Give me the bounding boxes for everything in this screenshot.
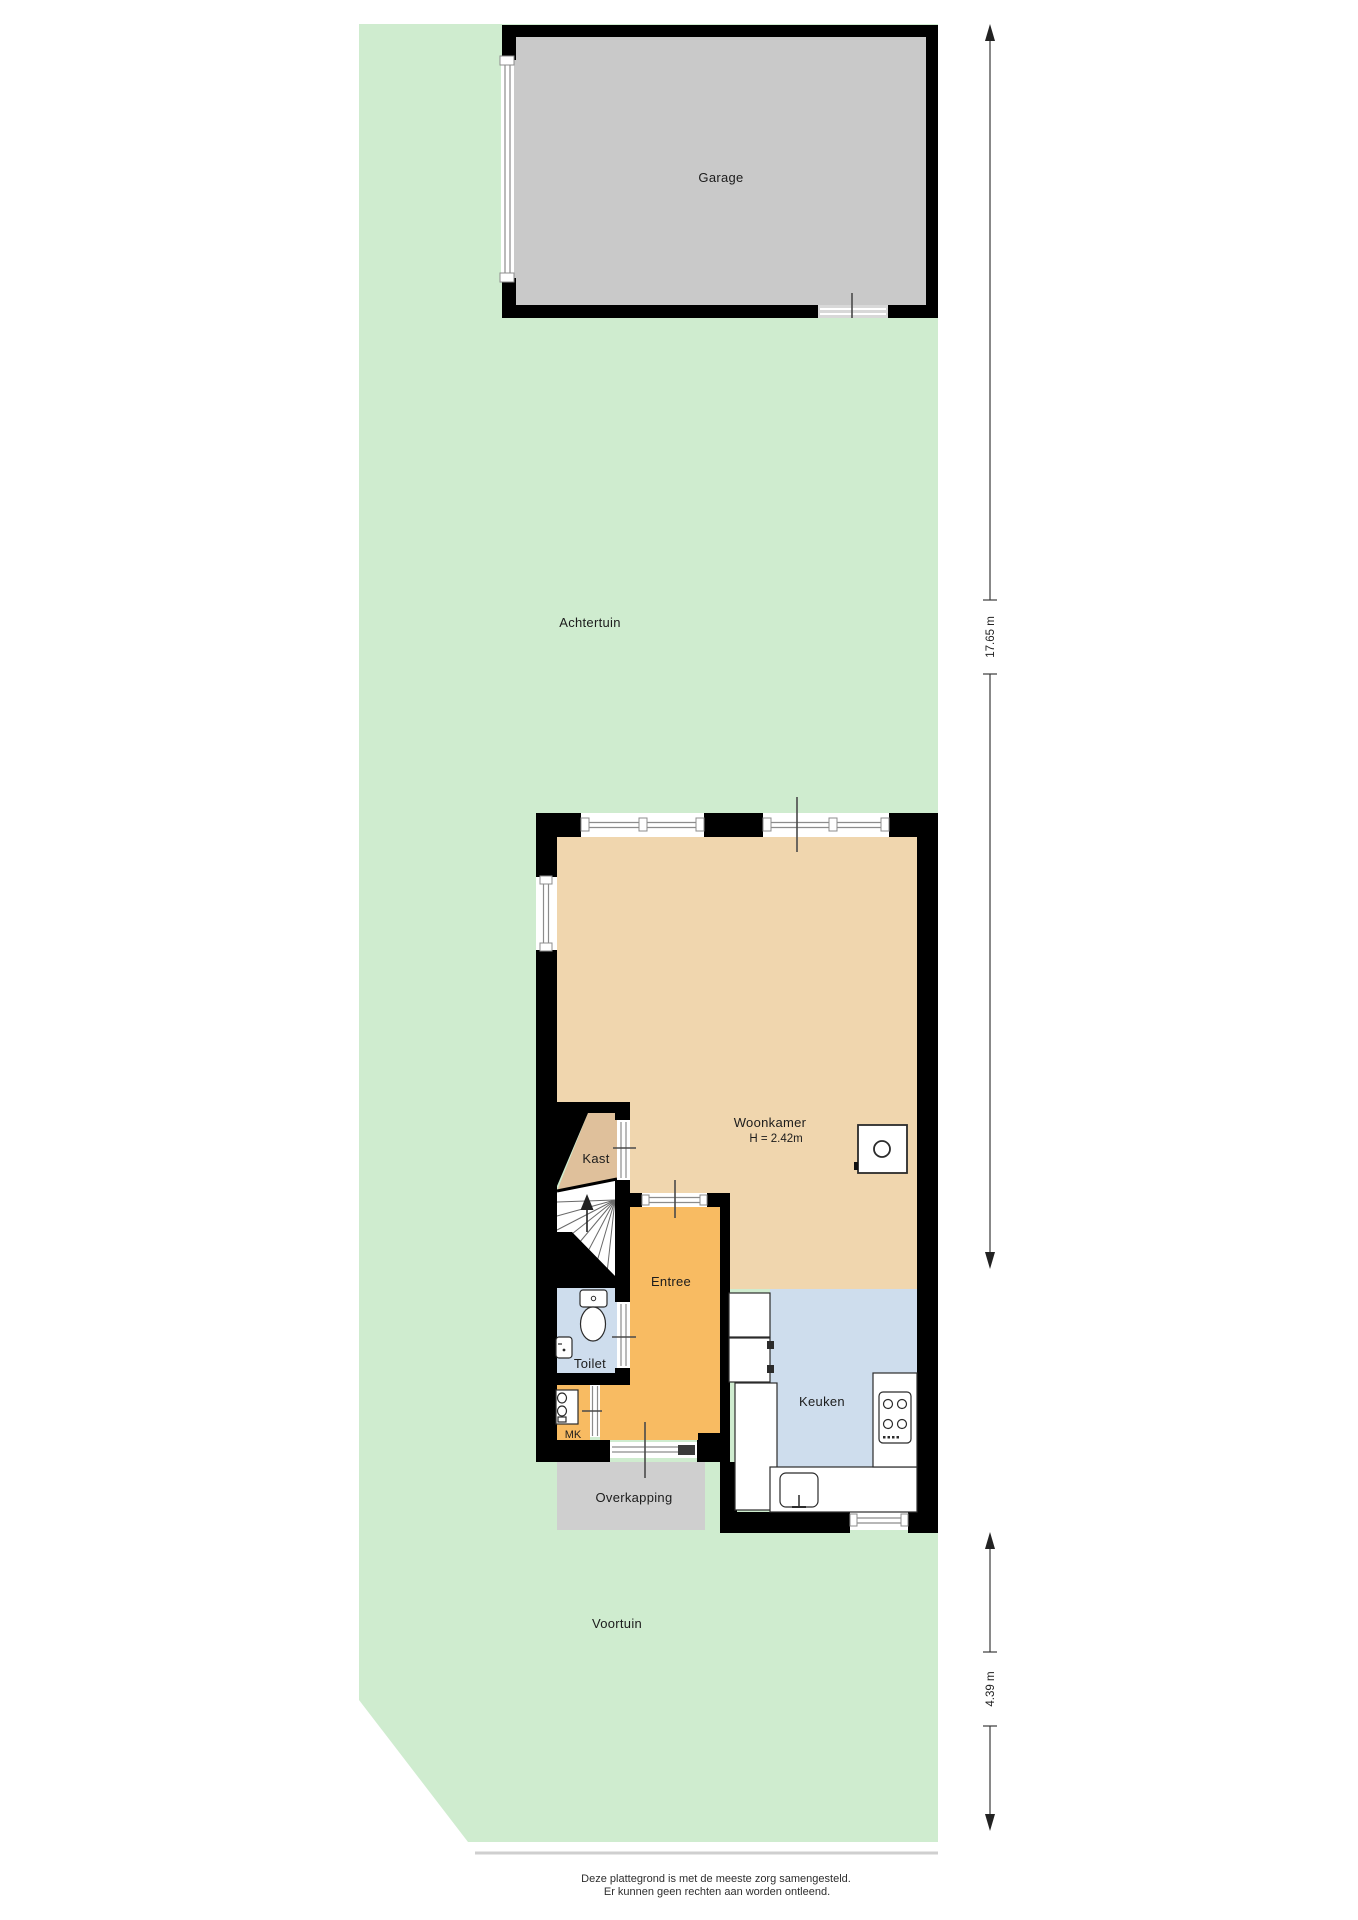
toilet-icon xyxy=(580,1290,607,1341)
overkapping-label: Overkapping xyxy=(595,1490,672,1505)
keuken-label: Keuken xyxy=(799,1394,845,1409)
floorplan-canvas: Garage Achtertuin Voortuin xyxy=(0,0,1358,1920)
toilet-sink-icon xyxy=(556,1337,572,1358)
woonkamer-label: Woonkamer xyxy=(734,1115,807,1130)
door-toilet xyxy=(617,1302,630,1368)
electric-meter-icon xyxy=(556,1390,578,1424)
door-kast xyxy=(617,1120,630,1180)
garage-wall-top xyxy=(502,25,938,37)
dimension-back-label: 17.65 m xyxy=(985,616,997,658)
garage-wall-bottom-left xyxy=(502,305,818,318)
garage-wall-left-top-pier xyxy=(502,25,516,60)
floorplan-page: Garage Achtertuin Voortuin xyxy=(0,0,1358,1920)
garage-wall-left-bottom-pier xyxy=(502,278,516,318)
window-top-left xyxy=(581,813,704,837)
dimension-front: 4.39 m xyxy=(983,1532,997,1831)
garage-wall-bottom-right xyxy=(888,305,938,318)
woonkamer-height-label: H = 2.42m xyxy=(749,1133,802,1145)
garage: Garage xyxy=(500,25,938,318)
footer-disclaimer-line2: Er kunnen geen rechten aan worden ontlee… xyxy=(604,1886,830,1898)
front-door xyxy=(610,1442,697,1458)
window-keuken-front xyxy=(850,1512,908,1530)
garage-label: Garage xyxy=(698,170,743,185)
voortuin-label: Voortuin xyxy=(592,1616,642,1631)
dimension-back: 17.65 m xyxy=(983,24,997,1269)
garage-window-left xyxy=(500,56,514,282)
entree-label: Entree xyxy=(651,1274,691,1289)
mk-label: MK xyxy=(565,1429,582,1441)
dimension-front-label: 4.39 m xyxy=(985,1671,997,1706)
window-top-right xyxy=(763,813,889,837)
kast-label: Kast xyxy=(582,1151,609,1166)
footer-disclaimer-line1: Deze plattegrond is met de meeste zorg s… xyxy=(581,1873,851,1885)
wood-stove-icon xyxy=(854,1125,907,1173)
toilet-label: Toilet xyxy=(574,1356,606,1371)
kitchen-sink-icon xyxy=(780,1473,818,1507)
garage-wall-right xyxy=(926,25,938,318)
window-left-wall xyxy=(536,876,557,951)
stove-column xyxy=(873,1373,917,1467)
achtertuin-label: Achtertuin xyxy=(559,615,621,630)
